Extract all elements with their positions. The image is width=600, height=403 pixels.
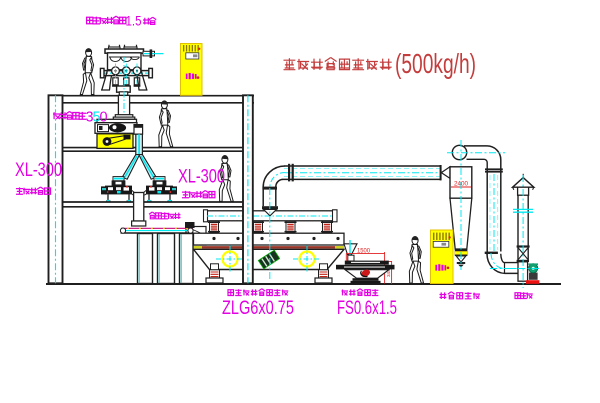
- svg-text:1.5: 1.5: [126, 13, 142, 29]
- svg-text:(500kg/h): (500kg/h): [395, 48, 476, 79]
- svg-text:FS0.6x1.5: FS0.6x1.5: [337, 297, 397, 319]
- svg-text:1500: 1500: [357, 249, 371, 255]
- svg-text:XL-300: XL-300: [178, 167, 225, 188]
- svg-text:0: 0: [100, 110, 108, 126]
- svg-text:ZLG6x0.75: ZLG6x0.75: [222, 297, 294, 319]
- svg-text:XL-300: XL-300: [15, 160, 62, 181]
